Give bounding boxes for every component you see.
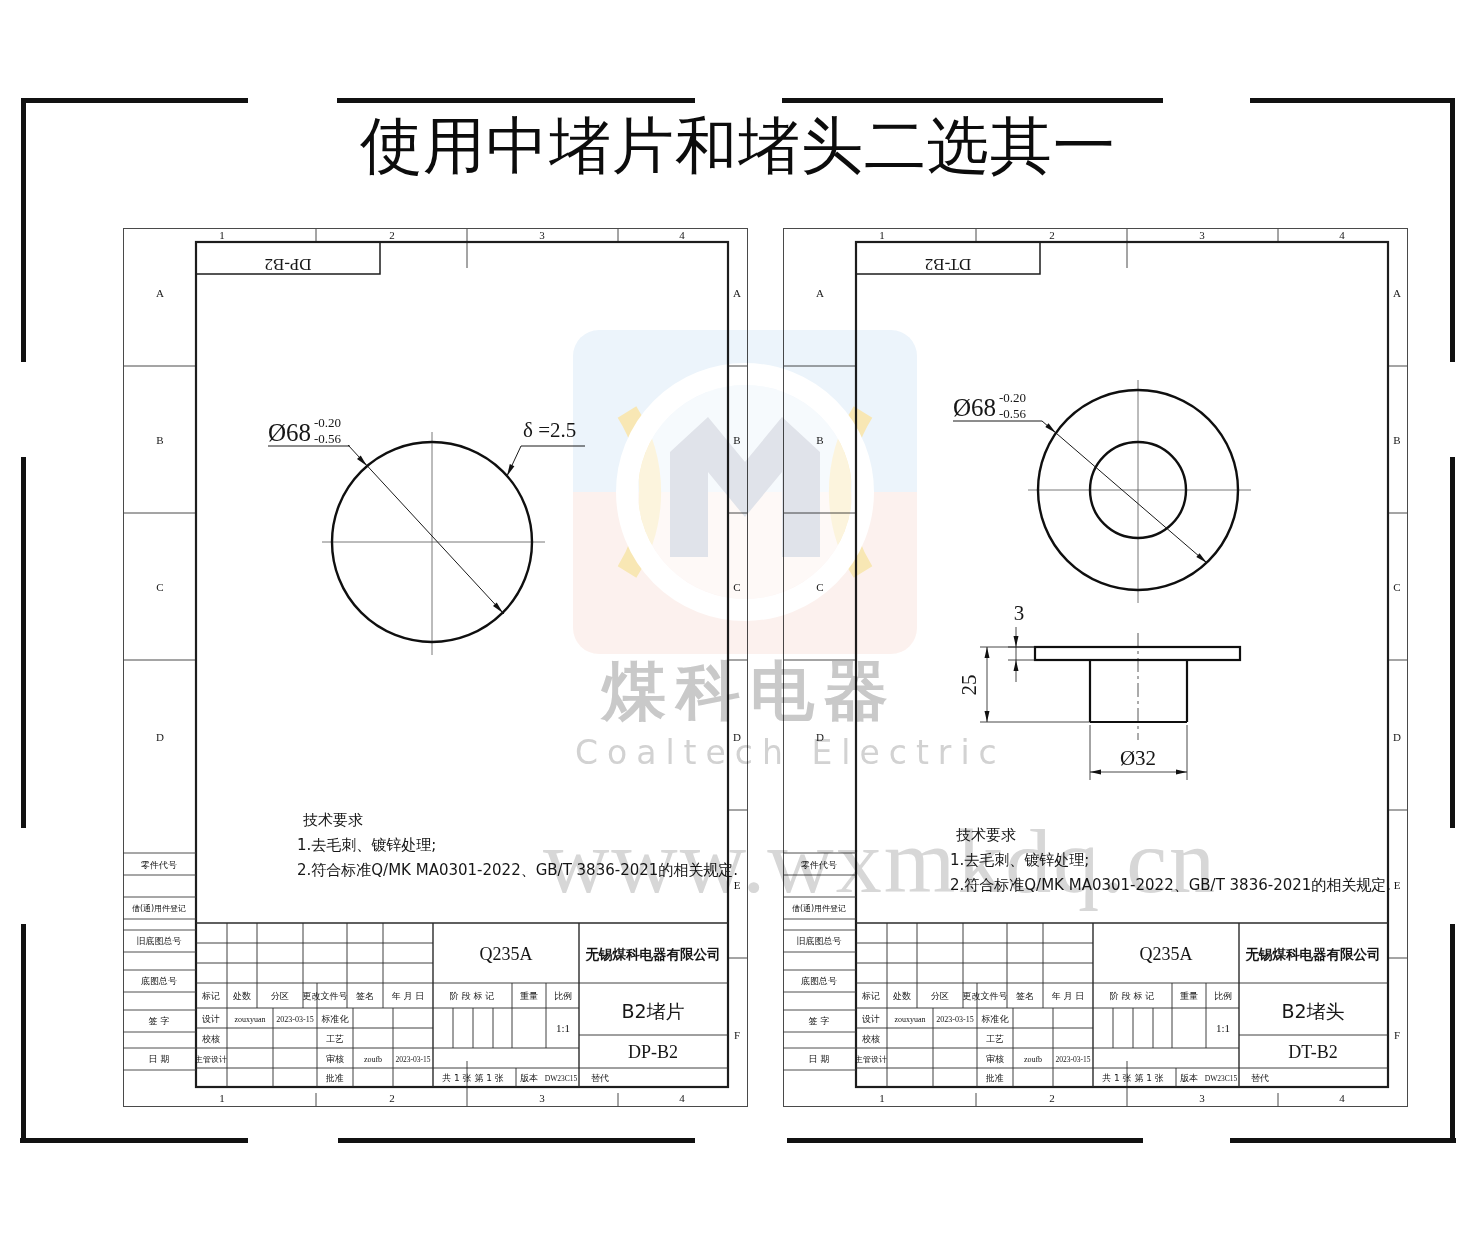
svg-text:2.符合标准Q/MK MA0301-2022、GB/T 38: 2.符合标准Q/MK MA0301-2022、GB/T 3836-2021的相关…	[950, 876, 1391, 894]
svg-text:标准化: 标准化	[981, 1014, 1010, 1024]
tolerance-lower: -0.56	[314, 431, 342, 446]
margin-grid-labels: 12 34 12 34 AB CD AB CD EF	[156, 229, 741, 1104]
plug-top-dimensions: Ø68 -0.20 -0.56	[953, 390, 1027, 421]
svg-text:zouxyuan: zouxyuan	[234, 1015, 265, 1024]
svg-text:C: C	[816, 581, 823, 593]
svg-text:A: A	[733, 287, 741, 299]
svg-text:处数: 处数	[232, 991, 251, 1001]
drawing-sheet-dt-b2: 12 34 12 34 AB CD AB CD EF DT-B2 零件代号 借(…	[783, 228, 1408, 1107]
svg-text:审核: 审核	[326, 1054, 344, 1064]
svg-text:B: B	[733, 434, 740, 446]
poster-canvas: 使用中堵片和堵头二选其一 12 34 12 34 AB CD AB CD EF …	[0, 0, 1476, 1241]
svg-text:DW23C15: DW23C15	[1205, 1074, 1238, 1083]
svg-text:1: 1	[879, 229, 885, 241]
svg-text:审核: 审核	[986, 1054, 1004, 1064]
drawing-number: DT-B2	[1288, 1042, 1337, 1062]
side-labels: 零件代号 借(通)用件登记 旧底图总号 底图总号 签 字 日 期	[792, 860, 846, 1064]
drawing-number: DP-B2	[628, 1042, 678, 1062]
plug-top-view	[953, 380, 1251, 603]
svg-text:zoufb: zoufb	[1024, 1055, 1042, 1064]
svg-text:旧底图总号: 旧底图总号	[137, 936, 182, 946]
svg-text:共 1 张 第 1 张: 共 1 张 第 1 张	[1102, 1073, 1164, 1083]
svg-text:版本: 版本	[1180, 1073, 1198, 1083]
svg-text:1.去毛刺、镀锌处理;: 1.去毛刺、镀锌处理;	[297, 836, 436, 854]
svg-text:标记: 标记	[861, 991, 880, 1001]
disc-view	[268, 432, 585, 655]
material: Q235A	[1140, 944, 1193, 964]
svg-text:2023-03-15: 2023-03-15	[936, 1015, 973, 1024]
svg-text:E: E	[1394, 879, 1401, 891]
svg-text:更改文件号: 更改文件号	[303, 991, 348, 1001]
svg-text:零件代号: 零件代号	[141, 860, 177, 870]
svg-text:底图总号: 底图总号	[801, 976, 837, 986]
tech-requirements: 技术要求 1.去毛刺、镀锌处理; 2.符合标准Q/MK MA0301-2022、…	[950, 826, 1391, 894]
svg-text:3: 3	[1199, 1092, 1205, 1104]
svg-text:B: B	[816, 434, 823, 446]
svg-text:年 月 日: 年 月 日	[392, 991, 425, 1001]
svg-text:2.符合标准Q/MK MA0301-2022、GB/T 38: 2.符合标准Q/MK MA0301-2022、GB/T 3836-2021的相关…	[297, 861, 738, 879]
svg-text:主管设计: 主管设计	[854, 1055, 887, 1064]
part-name: B2堵片	[621, 1000, 684, 1022]
body-diameter: Ø32	[1120, 746, 1156, 770]
svg-text:设计: 设计	[202, 1014, 220, 1024]
svg-text:4: 4	[679, 229, 685, 241]
svg-text:重量: 重量	[1180, 991, 1198, 1001]
sheet-margin-frame	[123, 228, 748, 1107]
tech-requirements: 技术要求 1.去毛刺、镀锌处理; 2.符合标准Q/MK MA0301-2022、…	[297, 811, 738, 879]
svg-text:2: 2	[1049, 1092, 1055, 1104]
svg-text:1: 1	[219, 1092, 225, 1104]
svg-text:校核: 校核	[862, 1034, 880, 1044]
diameter-label: Ø68	[268, 419, 311, 446]
svg-text:批准: 批准	[985, 1073, 1004, 1083]
company-name: 无锡煤科电器有限公司	[585, 946, 721, 962]
plug-height: 25	[957, 675, 981, 696]
svg-text:更改文件号: 更改文件号	[963, 991, 1008, 1001]
svg-text:借(通)用件登记: 借(通)用件登记	[132, 903, 186, 913]
svg-text:zoufb: zoufb	[364, 1055, 382, 1064]
svg-text:DW23C15: DW23C15	[545, 1074, 578, 1083]
svg-text:签名: 签名	[356, 991, 374, 1001]
svg-text:版本: 版本	[520, 1073, 538, 1083]
svg-text:技术要求: 技术要求	[956, 826, 1016, 844]
scale-value: 1:1	[1216, 1022, 1230, 1034]
svg-text:工艺: 工艺	[326, 1034, 344, 1044]
svg-text:4: 4	[679, 1092, 685, 1104]
corner-drawing-code: DP-B2	[264, 255, 311, 274]
svg-text:共 1 张 第 1 张: 共 1 张 第 1 张	[442, 1073, 504, 1083]
side-label-boxes	[123, 853, 196, 1070]
corner-drawing-code: DT-B2	[925, 255, 972, 274]
diameter-label: Ø68	[953, 394, 996, 421]
svg-text:2023-03-15: 2023-03-15	[396, 1055, 431, 1064]
svg-text:2023-03-15: 2023-03-15	[1056, 1055, 1091, 1064]
svg-text:替代: 替代	[1251, 1073, 1269, 1083]
svg-text:3: 3	[539, 229, 545, 241]
svg-text:批准: 批准	[325, 1073, 344, 1083]
drawing-sheet-dp-b2: 12 34 12 34 AB CD AB CD EF DP-B2 零件代号 借(…	[123, 228, 748, 1107]
side-label-boxes	[783, 853, 856, 1070]
svg-text:3: 3	[539, 1092, 545, 1104]
svg-text:A: A	[156, 287, 164, 299]
tolerance-upper: -0.20	[999, 390, 1026, 405]
svg-text:工艺: 工艺	[986, 1034, 1004, 1044]
svg-text:2023-03-15: 2023-03-15	[276, 1015, 313, 1024]
tolerance-lower: -0.56	[999, 406, 1027, 421]
svg-text:签 字: 签 字	[149, 1016, 170, 1026]
svg-text:签 字: 签 字	[809, 1016, 830, 1026]
svg-text:F: F	[1394, 1029, 1400, 1041]
svg-text:2: 2	[389, 1092, 395, 1104]
sheet-margin-frame	[783, 228, 1408, 1107]
svg-text:日 期: 日 期	[149, 1054, 170, 1064]
flange-thickness: 3	[1014, 601, 1025, 625]
thickness-label: δ =2.5	[523, 418, 576, 442]
svg-text:零件代号: 零件代号	[801, 860, 837, 870]
svg-text:分区: 分区	[271, 991, 289, 1001]
part-name: B2堵头	[1281, 1000, 1344, 1022]
svg-text:3: 3	[1199, 229, 1205, 241]
svg-text:比例: 比例	[554, 991, 572, 1001]
svg-text:签名: 签名	[1016, 991, 1034, 1001]
side-labels: 零件代号 借(通)用件登记 旧底图总号 底图总号 签 字 日 期	[132, 860, 186, 1064]
svg-text:4: 4	[1339, 1092, 1345, 1104]
svg-text:F: F	[734, 1029, 740, 1041]
svg-text:A: A	[1393, 287, 1401, 299]
scale-value: 1:1	[556, 1022, 570, 1034]
svg-text:阶 段 标 记: 阶 段 标 记	[1110, 991, 1155, 1001]
svg-text:日 期: 日 期	[809, 1054, 830, 1064]
tolerance-upper: -0.20	[314, 415, 341, 430]
svg-text:标准化: 标准化	[321, 1014, 350, 1024]
page-title: 使用中堵片和堵头二选其一	[0, 104, 1476, 188]
company-name: 无锡煤科电器有限公司	[1245, 946, 1381, 962]
svg-text:技术要求: 技术要求	[303, 811, 363, 829]
material: Q235A	[480, 944, 533, 964]
margin-grid-labels: 12 34 12 34 AB CD AB CD EF	[816, 229, 1401, 1104]
svg-text:2: 2	[389, 229, 395, 241]
svg-text:校核: 校核	[202, 1034, 220, 1044]
svg-text:重量: 重量	[520, 991, 538, 1001]
svg-text:B: B	[156, 434, 163, 446]
svg-text:D: D	[156, 731, 164, 743]
svg-text:底图总号: 底图总号	[141, 976, 177, 986]
svg-text:1: 1	[879, 1092, 885, 1104]
svg-text:比例: 比例	[1214, 991, 1232, 1001]
svg-text:A: A	[816, 287, 824, 299]
svg-text:D: D	[1393, 731, 1401, 743]
svg-text:C: C	[156, 581, 163, 593]
svg-text:处数: 处数	[892, 991, 911, 1001]
svg-text:借(通)用件登记: 借(通)用件登记	[792, 903, 846, 913]
svg-text:旧底图总号: 旧底图总号	[797, 936, 842, 946]
svg-text:阶 段 标 记: 阶 段 标 记	[450, 991, 495, 1001]
svg-text:1: 1	[219, 229, 225, 241]
svg-text:B: B	[1393, 434, 1400, 446]
svg-text:4: 4	[1339, 229, 1345, 241]
svg-text:E: E	[734, 879, 741, 891]
svg-text:年 月 日: 年 月 日	[1052, 991, 1085, 1001]
svg-text:C: C	[733, 581, 740, 593]
svg-text:设计: 设计	[862, 1014, 880, 1024]
plug-side-view	[980, 627, 1240, 780]
svg-text:D: D	[816, 731, 824, 743]
svg-text:1.去毛刺、镀锌处理;: 1.去毛刺、镀锌处理;	[950, 851, 1089, 869]
svg-text:C: C	[1393, 581, 1400, 593]
svg-text:D: D	[733, 731, 741, 743]
svg-text:主管设计: 主管设计	[194, 1055, 227, 1064]
svg-text:替代: 替代	[591, 1073, 609, 1083]
svg-text:分区: 分区	[931, 991, 949, 1001]
svg-text:zouxyuan: zouxyuan	[894, 1015, 925, 1024]
svg-text:2: 2	[1049, 229, 1055, 241]
svg-text:标记: 标记	[201, 991, 220, 1001]
